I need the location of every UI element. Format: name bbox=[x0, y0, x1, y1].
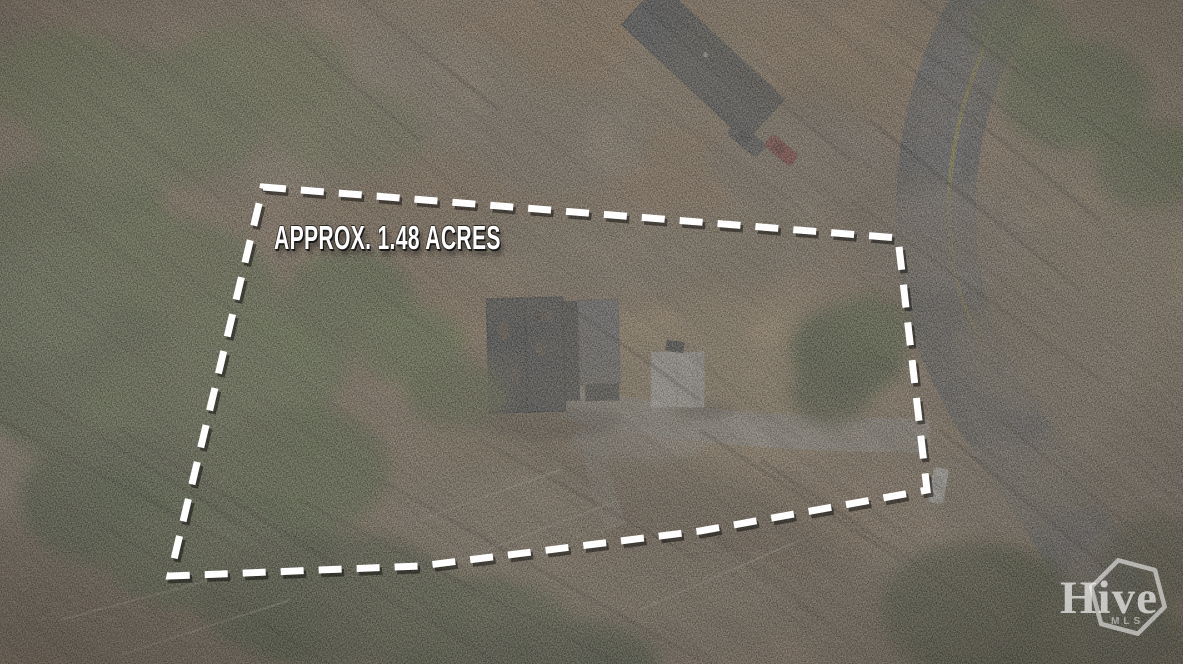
white-outbuilding bbox=[651, 340, 738, 419]
streak-noise bbox=[0, 0, 1183, 664]
acreage-label: APPROX. 1.48 ACRES bbox=[274, 221, 501, 256]
property-boundary-overlay bbox=[0, 0, 1183, 664]
vignette bbox=[0, 0, 1183, 664]
parked-white-car bbox=[928, 467, 949, 504]
twig-texture bbox=[0, 0, 1183, 664]
fallen-trunks bbox=[60, 470, 800, 655]
structures bbox=[470, 0, 949, 504]
tree-shadow-streaks bbox=[0, 0, 1183, 664]
watermark: Hive MLS bbox=[0, 0, 1183, 664]
hive-hexagon-icon bbox=[1091, 560, 1164, 633]
road bbox=[926, 0, 1180, 664]
neighbor-house-roof bbox=[622, 0, 785, 140]
evergreen-canopies bbox=[0, 0, 1183, 664]
main-house-roof bbox=[487, 297, 581, 413]
mottle-overlay bbox=[0, 0, 1183, 664]
gravel-driveway bbox=[566, 400, 930, 527]
grain-dark bbox=[0, 0, 1183, 664]
gray-trailer bbox=[807, 364, 831, 381]
neighbor-red-car bbox=[764, 134, 798, 166]
watermark-subtext: MLS bbox=[1111, 616, 1144, 627]
aerial-photo-stage: APPROX. 1.48 ACRES Hive MLS bbox=[0, 0, 1183, 664]
secondary-roof bbox=[578, 299, 621, 401]
neighbor-dark-car bbox=[727, 121, 766, 157]
ground-tone-variation bbox=[0, 0, 1183, 664]
aerial-photo bbox=[0, 0, 1183, 664]
dark-vehicle-by-outbuilding bbox=[665, 340, 684, 353]
asphalt-road bbox=[936, 0, 1140, 664]
broad-shadow-bands bbox=[0, 0, 1144, 664]
grain-light bbox=[0, 0, 1183, 664]
road-edge-line bbox=[949, 0, 1014, 352]
watermark-brand-text: Hive bbox=[1060, 572, 1158, 624]
bare-tree-canopies bbox=[220, 30, 1183, 664]
ground-base bbox=[0, 0, 1183, 664]
